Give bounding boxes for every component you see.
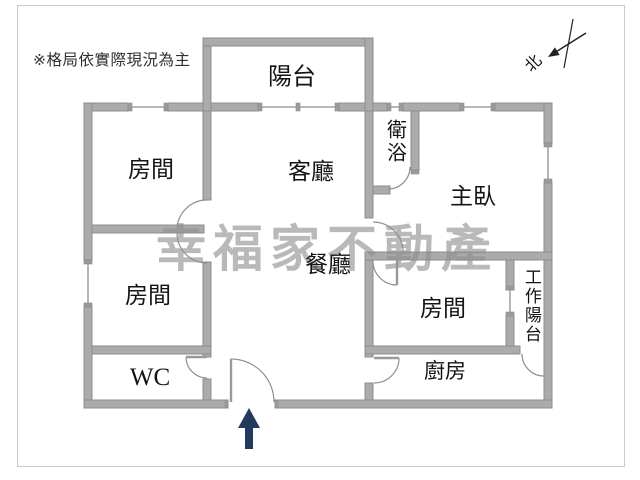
room-label-room-topleft: 房間 xyxy=(128,157,174,181)
floorplan-canvas: 幸福家不動產 ※格局依實際現況為主 北 陽台 房間 客廳 衛浴 主臥 餐廳 房間… xyxy=(0,0,640,480)
room-label-bath: 衛浴 xyxy=(384,119,405,165)
room-label-balcony: 陽台 xyxy=(268,64,316,89)
room-label-wc: WC xyxy=(130,365,170,391)
room-label-dining: 餐廳 xyxy=(305,252,351,276)
room-label-living: 客廳 xyxy=(288,159,334,183)
room-label-room-bottomright: 房間 xyxy=(420,296,466,320)
entrance-arrow-icon xyxy=(238,408,260,449)
room-label-work-balcony: 工作陽台 xyxy=(522,268,540,344)
disclaimer-note: ※格局依實際現況為主 xyxy=(33,48,191,70)
room-label-kitchen: 廚房 xyxy=(424,361,466,383)
compass xyxy=(548,19,586,68)
room-label-room-midleft: 房間 xyxy=(125,283,171,307)
room-label-master: 主臥 xyxy=(450,184,496,208)
north-arrowhead xyxy=(548,47,560,57)
